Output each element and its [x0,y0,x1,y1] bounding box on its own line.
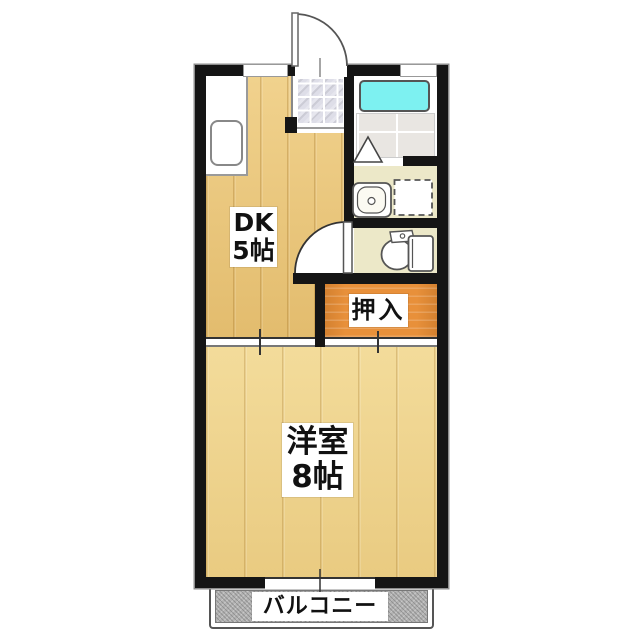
western-room-label-line2: 8帖 [282,460,353,495]
dk-label-line2: 5帖 [230,237,277,265]
toilet-door [295,222,352,273]
toilet [382,231,434,272]
floor-plan: DK 5帖 洋室 8帖 押入 バルコニー [0,0,640,640]
balcony-label: バルコニー [252,592,388,621]
washing-machine-space [395,180,433,215]
bathroom-folding-door [354,137,382,162]
fixture-layer [0,0,640,640]
entrance-door [292,13,347,77]
dk-label-line1: DK [230,209,277,237]
washbasin [353,183,391,217]
dk-label: DK 5帖 [230,207,277,267]
western-room-label-line1: 洋室 [282,425,353,460]
closet-label: 押入 [349,294,408,327]
western-room-label: 洋室 8帖 [282,423,353,497]
